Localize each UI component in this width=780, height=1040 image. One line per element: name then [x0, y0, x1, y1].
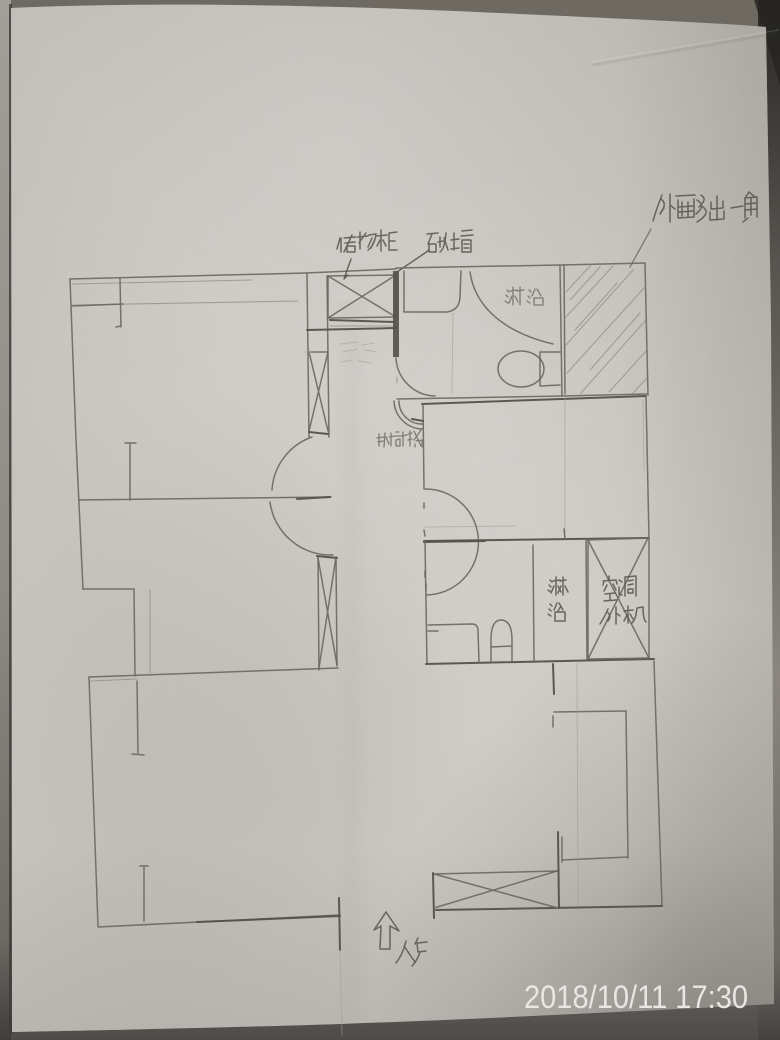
svg-text:2018/10/11 17:30: 2018/10/11 17:30 — [524, 979, 748, 1015]
